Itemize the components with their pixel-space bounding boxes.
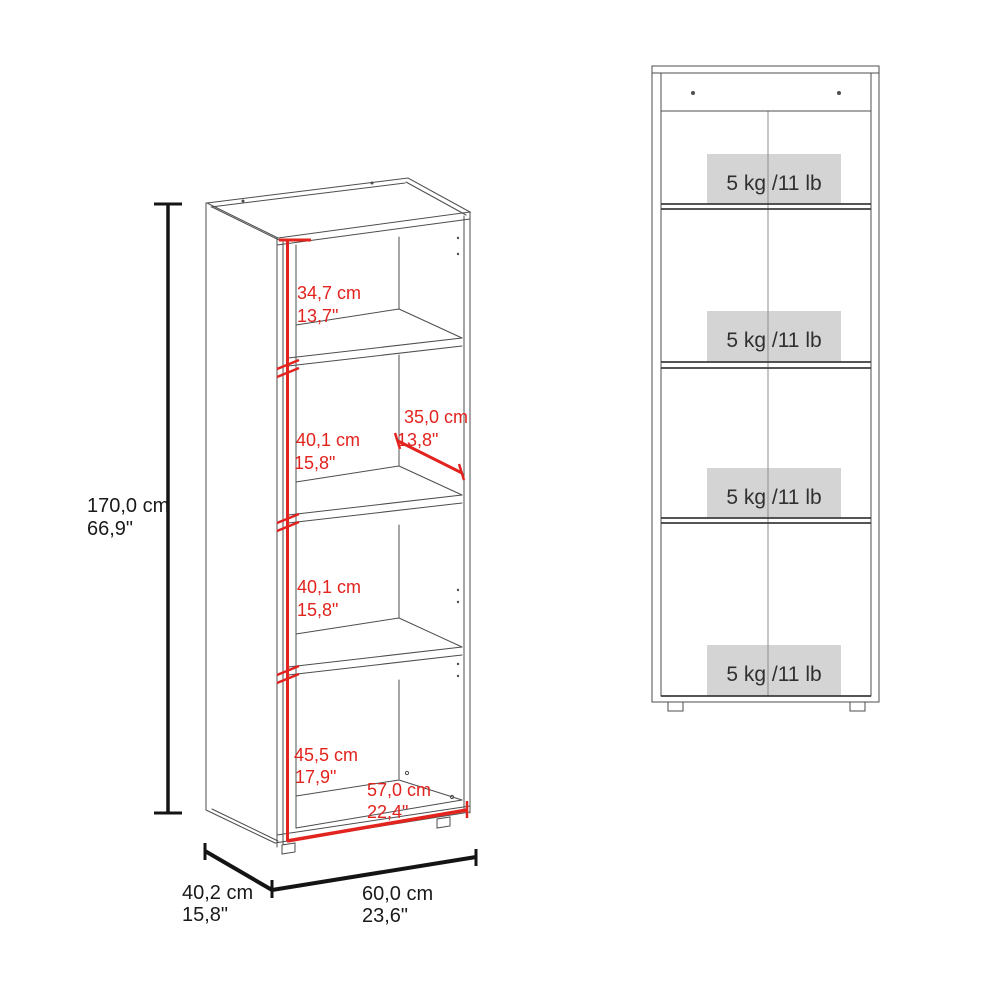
rail-hole-dot xyxy=(691,91,695,95)
interior-width-in: 22,4" xyxy=(367,802,408,822)
width-label-cm: 60,0 cm xyxy=(362,883,433,905)
capacity-label-3: 5 kg /11 lb xyxy=(726,486,821,509)
shelf-front-edge xyxy=(288,338,462,358)
shelf-back-edge xyxy=(296,618,399,634)
side-bottom-outer xyxy=(206,810,275,843)
compartment-1-height-in: 13,7" xyxy=(297,306,338,326)
interior-width-cm: 57,0 cm xyxy=(367,780,431,800)
top-hole-dot xyxy=(371,182,374,185)
capacity-label-2: 5 kg /11 lb xyxy=(726,329,821,352)
compartment-2-height-cm: 40,1 cm xyxy=(296,430,360,450)
top-back-edge-line xyxy=(211,183,405,207)
pin-hole xyxy=(457,663,459,665)
shelf-bottom-edge xyxy=(288,503,462,523)
shelf-right-edge xyxy=(399,618,462,647)
shelf-front-edge xyxy=(288,495,462,515)
bookcase-3d-view: 34,7 cm 13,7" 35,0 cm 13,8" 40,1 cm 15,8… xyxy=(87,178,476,927)
compartment-4-height-cm: 45,5 cm xyxy=(294,745,358,765)
compartment-3-height-cm: 40,1 cm xyxy=(297,577,361,597)
left-foot xyxy=(668,702,683,711)
pin-hole xyxy=(457,253,459,255)
capacity-label-1: 5 kg /11 lb xyxy=(726,172,821,195)
top-hole-dot xyxy=(242,200,245,203)
shelf-bottom-edge xyxy=(288,346,462,366)
pin-hole xyxy=(457,675,459,677)
right-foot xyxy=(850,702,865,711)
front-foot xyxy=(282,843,295,854)
depth-label-in: 15,8" xyxy=(182,904,228,926)
shelf-right-edge xyxy=(399,466,462,495)
product-dimension-diagram: 34,7 cm 13,7" 35,0 cm 13,8" 40,1 cm 15,8… xyxy=(0,0,1000,1000)
diagram-canvas: 34,7 cm 13,7" 35,0 cm 13,8" 40,1 cm 15,8… xyxy=(0,0,1000,1000)
compartment-4-height-in: 17,9" xyxy=(295,767,336,787)
shelf-front-edge xyxy=(288,647,462,667)
height-label-in: 66,9" xyxy=(87,518,133,540)
compartment-2-height-in: 15,8" xyxy=(294,453,335,473)
shelf-depth-cm: 35,0 cm xyxy=(404,407,468,427)
top-left-edge-line xyxy=(212,207,279,240)
top-right-edge-line xyxy=(406,182,466,215)
pin-hole xyxy=(457,589,459,591)
height-label-cm: 170,0 cm xyxy=(87,495,169,517)
compartment-3-height-in: 15,8" xyxy=(297,600,338,620)
shelf-right-edge xyxy=(399,309,462,338)
capacity-boxes xyxy=(707,154,841,696)
pin-hole xyxy=(457,601,459,603)
top-face xyxy=(207,178,470,238)
bottom-hole xyxy=(405,771,408,774)
pin-hole xyxy=(457,237,459,239)
front-foot xyxy=(437,817,450,828)
shelf-depth-in: 13,8" xyxy=(397,430,438,450)
rail-hole-dot xyxy=(837,91,841,95)
depth-label-cm: 40,2 cm xyxy=(182,882,253,904)
compartment-1-height-cm: 34,7 cm xyxy=(297,283,361,303)
width-label-in: 23,6" xyxy=(362,905,408,927)
side-bottom-inner xyxy=(212,809,278,841)
overall-dimension-labels: 170,0 cm 66,9" 40,2 cm 15,8" 60,0 cm 23,… xyxy=(87,495,433,927)
capacity-labels: 5 kg /11 lb 5 kg /11 lb 5 kg /11 lb 5 kg… xyxy=(726,172,821,686)
shelf-bottom-edge xyxy=(288,655,462,675)
capacity-label-4: 5 kg /11 lb xyxy=(726,663,821,686)
interior-dimension-labels: 34,7 cm 13,7" 35,0 cm 13,8" 40,1 cm 15,8… xyxy=(294,283,468,822)
bookcase-front-view: 5 kg /11 lb 5 kg /11 lb 5 kg /11 lb 5 kg… xyxy=(652,66,879,711)
